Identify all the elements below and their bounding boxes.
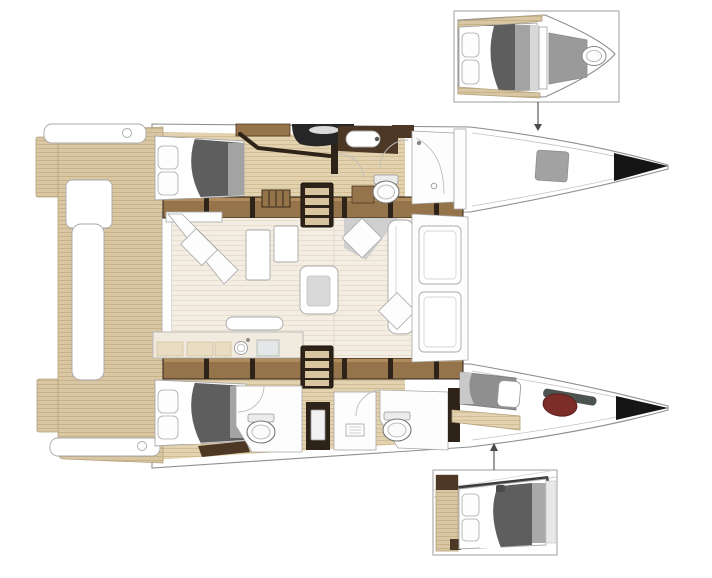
pillow-icon — [462, 60, 479, 84]
floor-plan-canvas — [0, 0, 712, 578]
toilet-icon — [383, 412, 411, 441]
starboard-forward-berth — [452, 372, 521, 430]
inset-starboard-bow-cabin — [433, 443, 557, 555]
starboard-shower — [334, 392, 376, 450]
blanket — [532, 483, 546, 543]
aft-cockpit — [36, 124, 163, 463]
shower-floor — [549, 33, 587, 84]
inset-connector-arrow — [534, 124, 542, 131]
head-door — [311, 410, 325, 440]
catamaran-floor-plan — [0, 0, 712, 578]
winch-port — [123, 129, 132, 138]
pillow-icon — [158, 390, 178, 413]
mattress-notch — [496, 485, 505, 492]
pillow-icon — [497, 380, 521, 408]
port-companionway-steps — [301, 183, 333, 227]
forward-bench-hatch-lower — [419, 292, 461, 352]
blanket — [515, 25, 530, 90]
blanket — [228, 143, 244, 195]
shower-head-icon — [417, 141, 421, 145]
port-bow-hatch — [535, 150, 569, 182]
inset-port-bow-cabin — [454, 11, 619, 131]
forward-bench-hatch-upper — [419, 226, 461, 284]
toilet-icon — [373, 175, 399, 203]
coffee-table — [300, 266, 338, 314]
salon-cabinet-tall — [246, 230, 270, 280]
port-lockers — [236, 124, 290, 136]
port-aft-berth — [155, 136, 244, 200]
faucet-icon — [375, 137, 379, 141]
galley-sink-icon — [235, 342, 248, 355]
port-shower — [412, 131, 454, 204]
head-divider-wall — [306, 402, 330, 450]
pillow-icon — [462, 519, 479, 541]
port-storage-shelf — [262, 190, 290, 207]
galley-faucet-icon — [246, 338, 250, 342]
starboard-aft-head — [236, 386, 302, 452]
inset-starboard-bow-content — [434, 470, 556, 551]
cockpit-settee — [66, 180, 112, 228]
toilet-icon — [582, 47, 606, 66]
forward-cockpit — [412, 214, 468, 362]
cooktop-icon — [257, 340, 279, 356]
toilet-icon — [247, 414, 275, 443]
cockpit-side-bench — [72, 224, 104, 380]
galley-bar-top — [226, 317, 283, 330]
pillow-icon — [462, 33, 479, 57]
pillow-icon — [462, 494, 479, 516]
pillow-icon — [158, 416, 178, 439]
starboard-companionway-steps — [301, 346, 333, 388]
head-cabinet — [352, 186, 374, 203]
winch-starboard — [138, 442, 147, 451]
cabin-divider — [539, 27, 547, 89]
port-forward-bulkhead — [454, 129, 466, 209]
pillow-icon — [158, 146, 178, 169]
pillow-icon — [158, 172, 178, 195]
salon-cabinet-short — [274, 226, 298, 262]
